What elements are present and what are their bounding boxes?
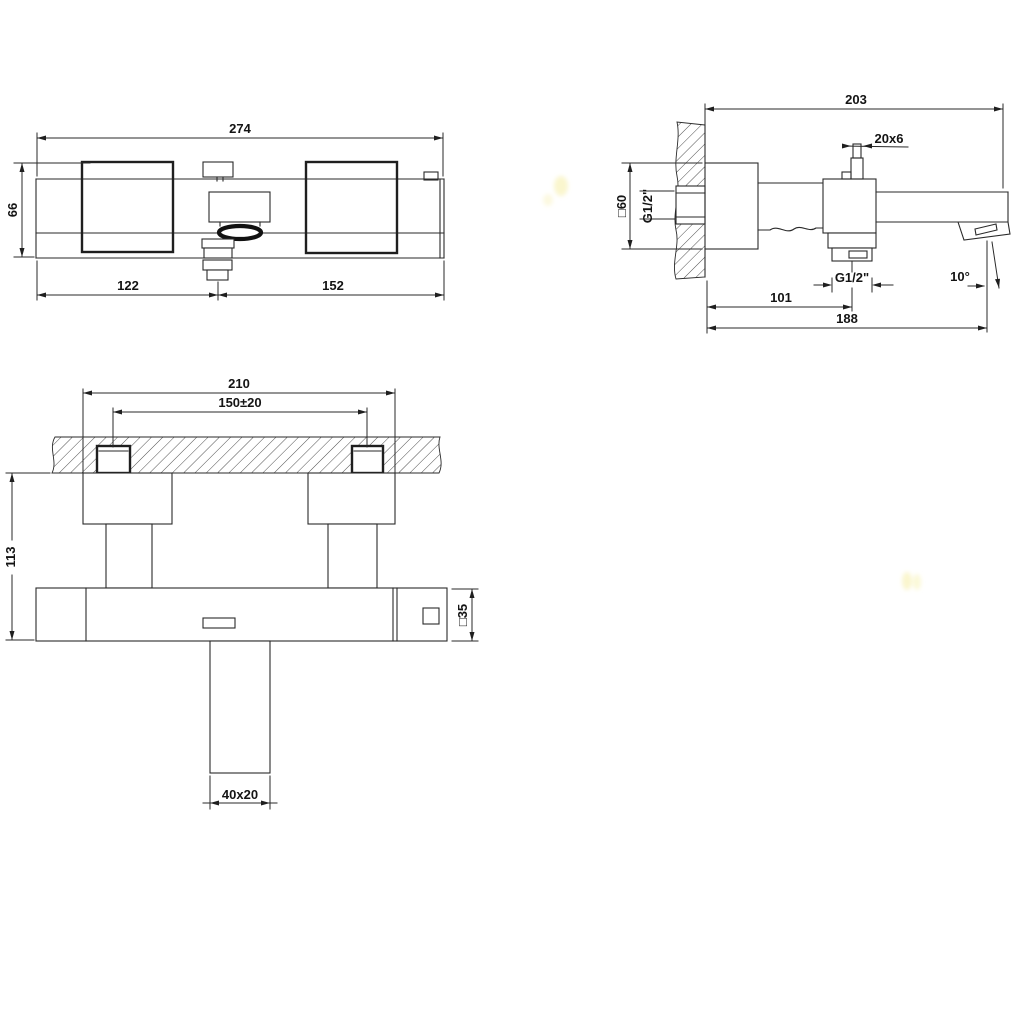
- spout-section-dimension: 40x20: [203, 776, 277, 809]
- handshower-thread-label: G1/2": [835, 270, 869, 285]
- body-depth-label: 66: [5, 203, 20, 217]
- outlet-axis-dimension: 188: [707, 311, 987, 331]
- inlet-thread-label: G1/2": [640, 189, 655, 223]
- wall-plate-label: □60: [614, 195, 629, 217]
- spout-front: [210, 641, 270, 773]
- overall-width-label: 274: [229, 121, 251, 136]
- spout-to-right-label: 152: [322, 278, 344, 293]
- handle-section-label: 20x6: [875, 131, 904, 146]
- front-overall-label: 210: [228, 376, 250, 391]
- spout-position-dimensions: 122 152: [37, 261, 444, 300]
- inlet-fitting: [676, 186, 705, 224]
- handshower-axis-dimension: 101: [707, 281, 852, 333]
- body-tube-side: [758, 183, 823, 231]
- side-view: 203 20x6 □60 G1/2": [614, 92, 1010, 333]
- outlet-axis-label: 188: [836, 311, 858, 326]
- mixer-body-front: [36, 588, 447, 641]
- projection-dimension: 203: [705, 92, 1003, 188]
- body-section-dimension: □35: [452, 589, 478, 641]
- outlet-angle-dimension: 10°: [950, 241, 1000, 332]
- left-rosette-top-view: [82, 162, 173, 252]
- inlet-centers-label: 150±20: [218, 395, 261, 410]
- body-section-label: □35: [455, 604, 470, 626]
- handle-section-dimension: 20x6: [842, 131, 908, 149]
- valve-block-side: [823, 179, 876, 233]
- handle-lever-side: [842, 144, 863, 179]
- projection-label: 203: [845, 92, 867, 107]
- outlet-angle-label: 10°: [950, 269, 970, 284]
- faucet-dimension-drawing: 274 66 122 152: [0, 0, 1024, 1024]
- left-union: [83, 473, 172, 524]
- wall-rosette-side: [705, 163, 758, 249]
- spout-top-view: [209, 192, 270, 239]
- spout-side: [876, 192, 1010, 240]
- body-depth-dimension: 66: [5, 163, 90, 257]
- spout-from-left-label: 122: [117, 278, 139, 293]
- wall-to-bottom-label: 113: [3, 547, 18, 568]
- left-column: [106, 524, 152, 588]
- handle-lever-top-view: [203, 162, 233, 181]
- right-union: [308, 473, 395, 524]
- right-column: [328, 524, 377, 588]
- right-rosette-top-view: [306, 162, 397, 253]
- technical-drawing-sheet: 274 66 122 152: [0, 0, 1024, 1024]
- handshower-thread-dimension: G1/2": [814, 270, 893, 292]
- front-view: 210 150±20: [3, 376, 478, 809]
- spout-section-label: 40x20: [222, 787, 258, 802]
- inlet-thread-dimension: G1/2": [640, 189, 674, 223]
- top-view: 274 66 122 152: [5, 121, 444, 300]
- overall-width-dimension: 274: [37, 121, 443, 176]
- handshower-axis-label: 101: [770, 290, 792, 305]
